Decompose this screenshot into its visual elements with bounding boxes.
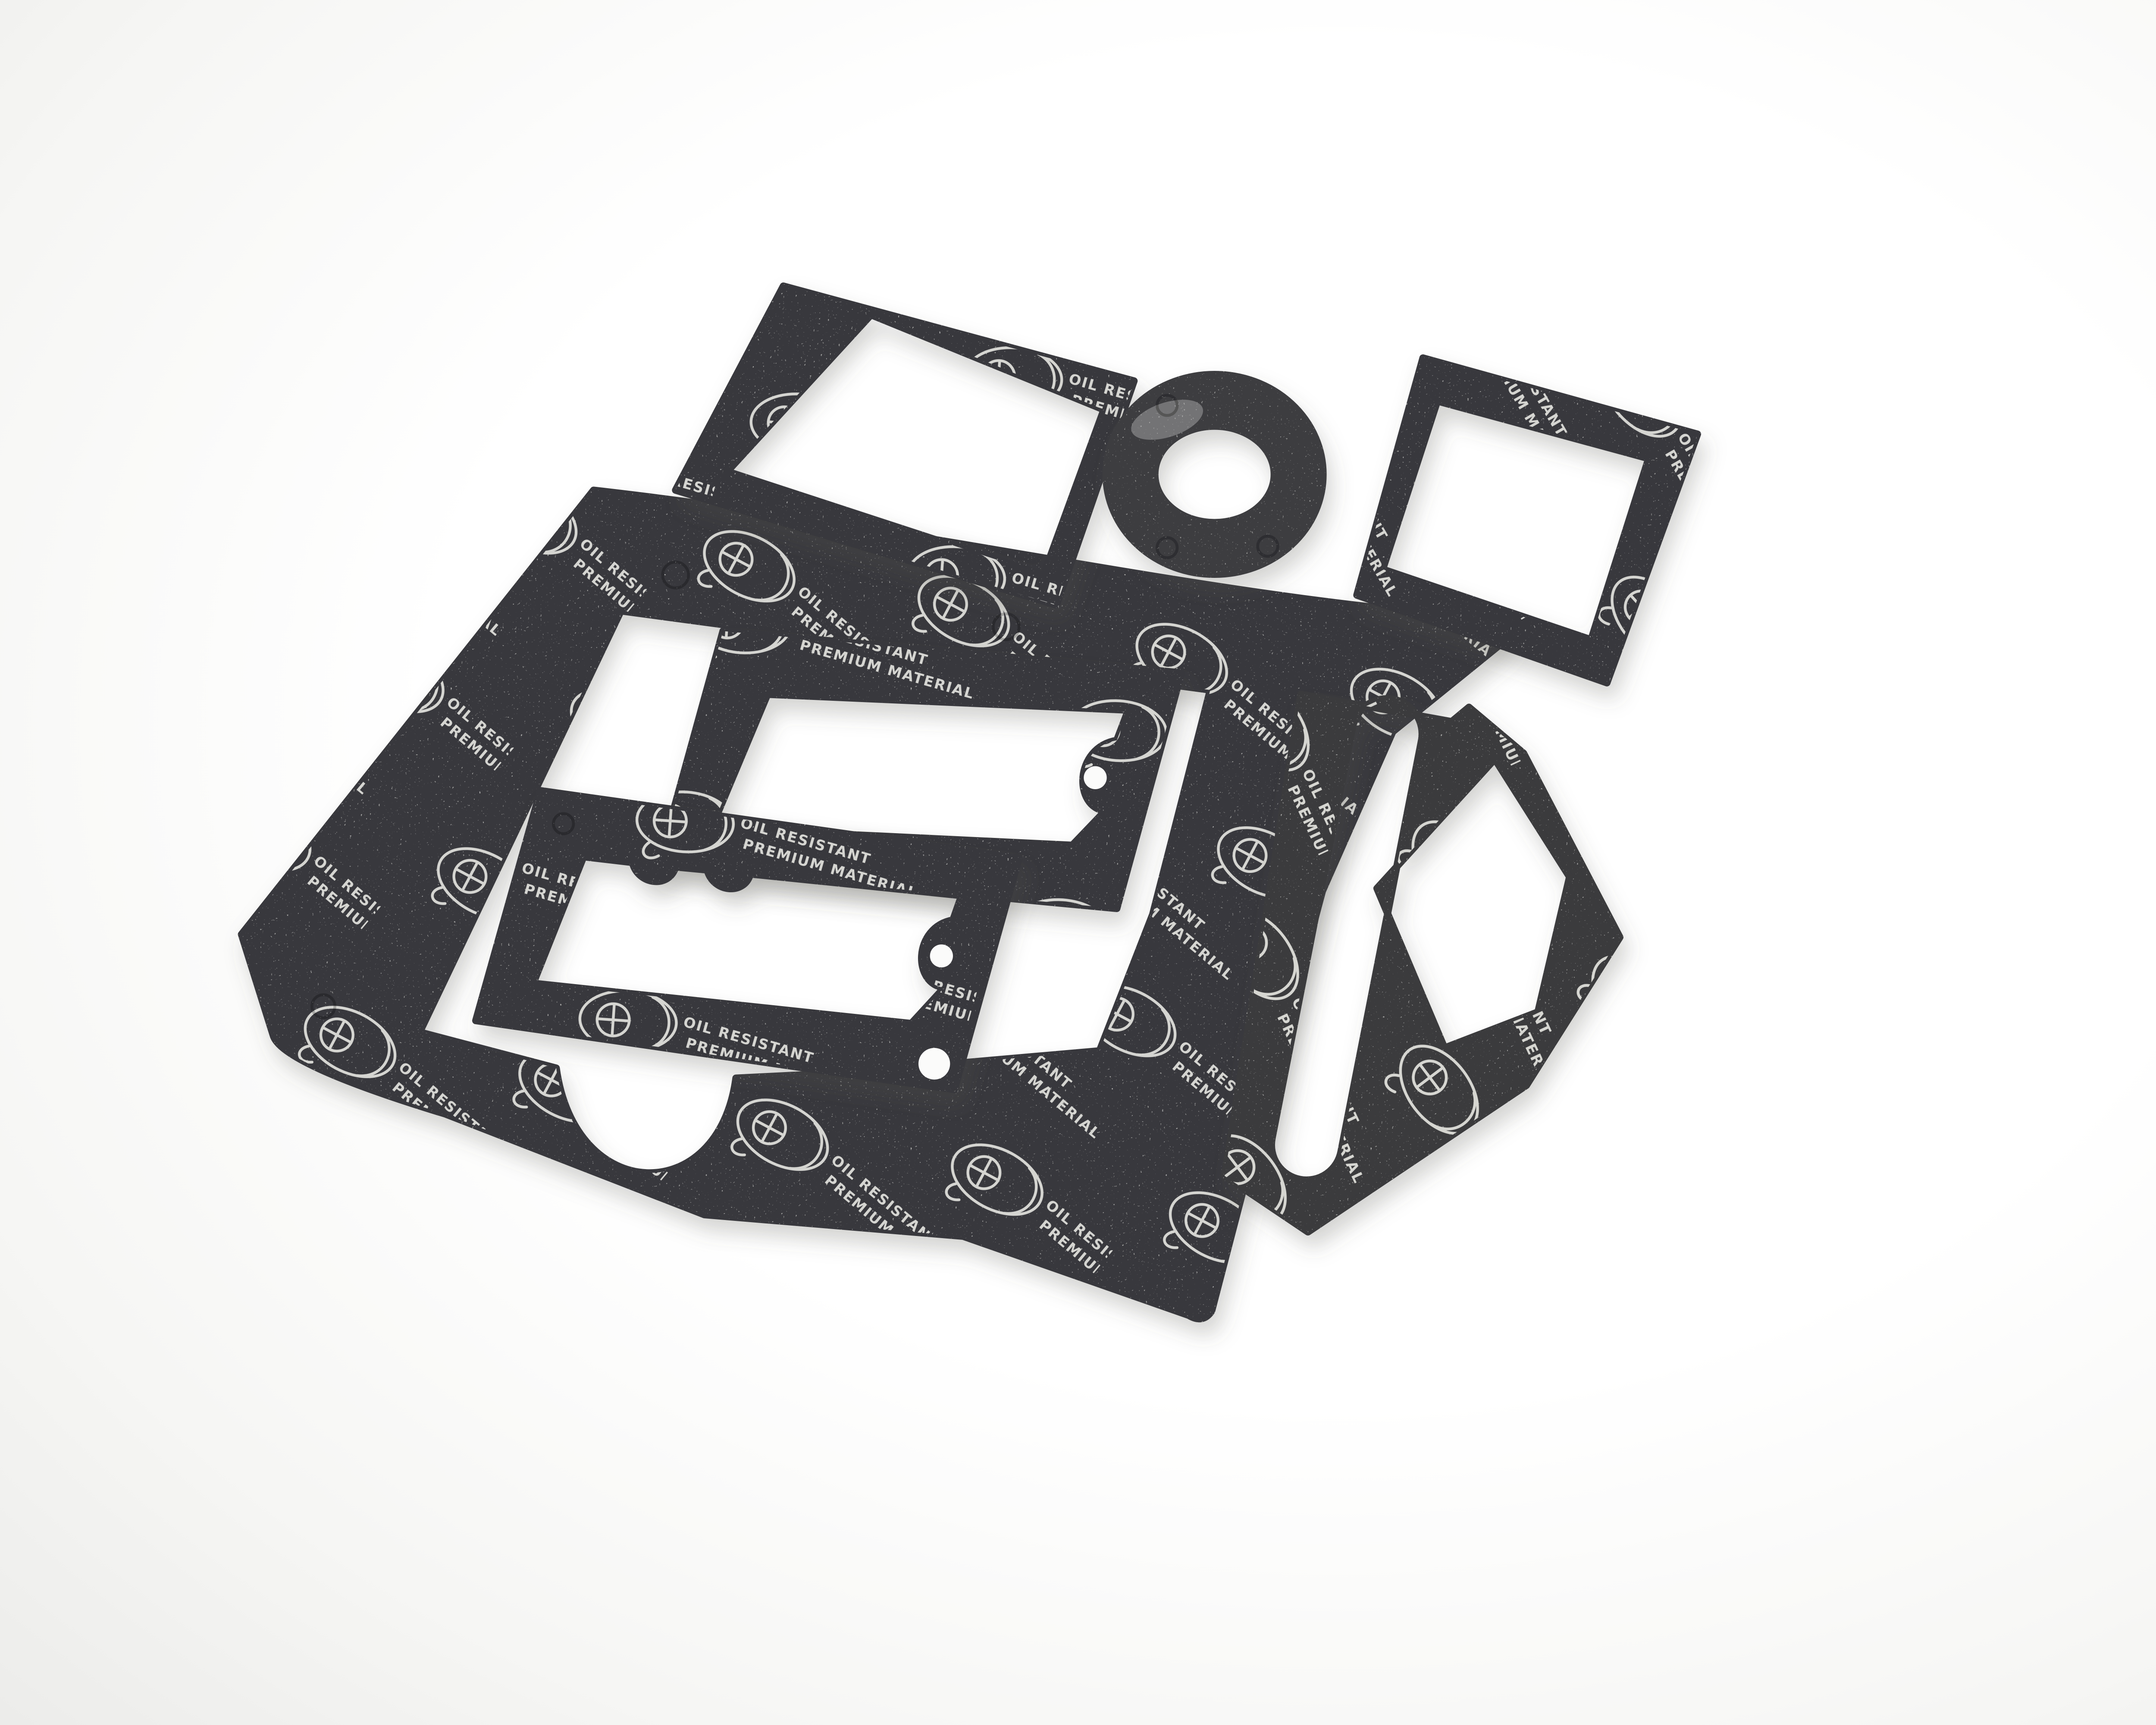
washer-gasket	[1105, 374, 1324, 575]
gasket-set-photo: OIL RESISTANT PREMIUM MATERIAL	[0, 0, 2156, 1725]
